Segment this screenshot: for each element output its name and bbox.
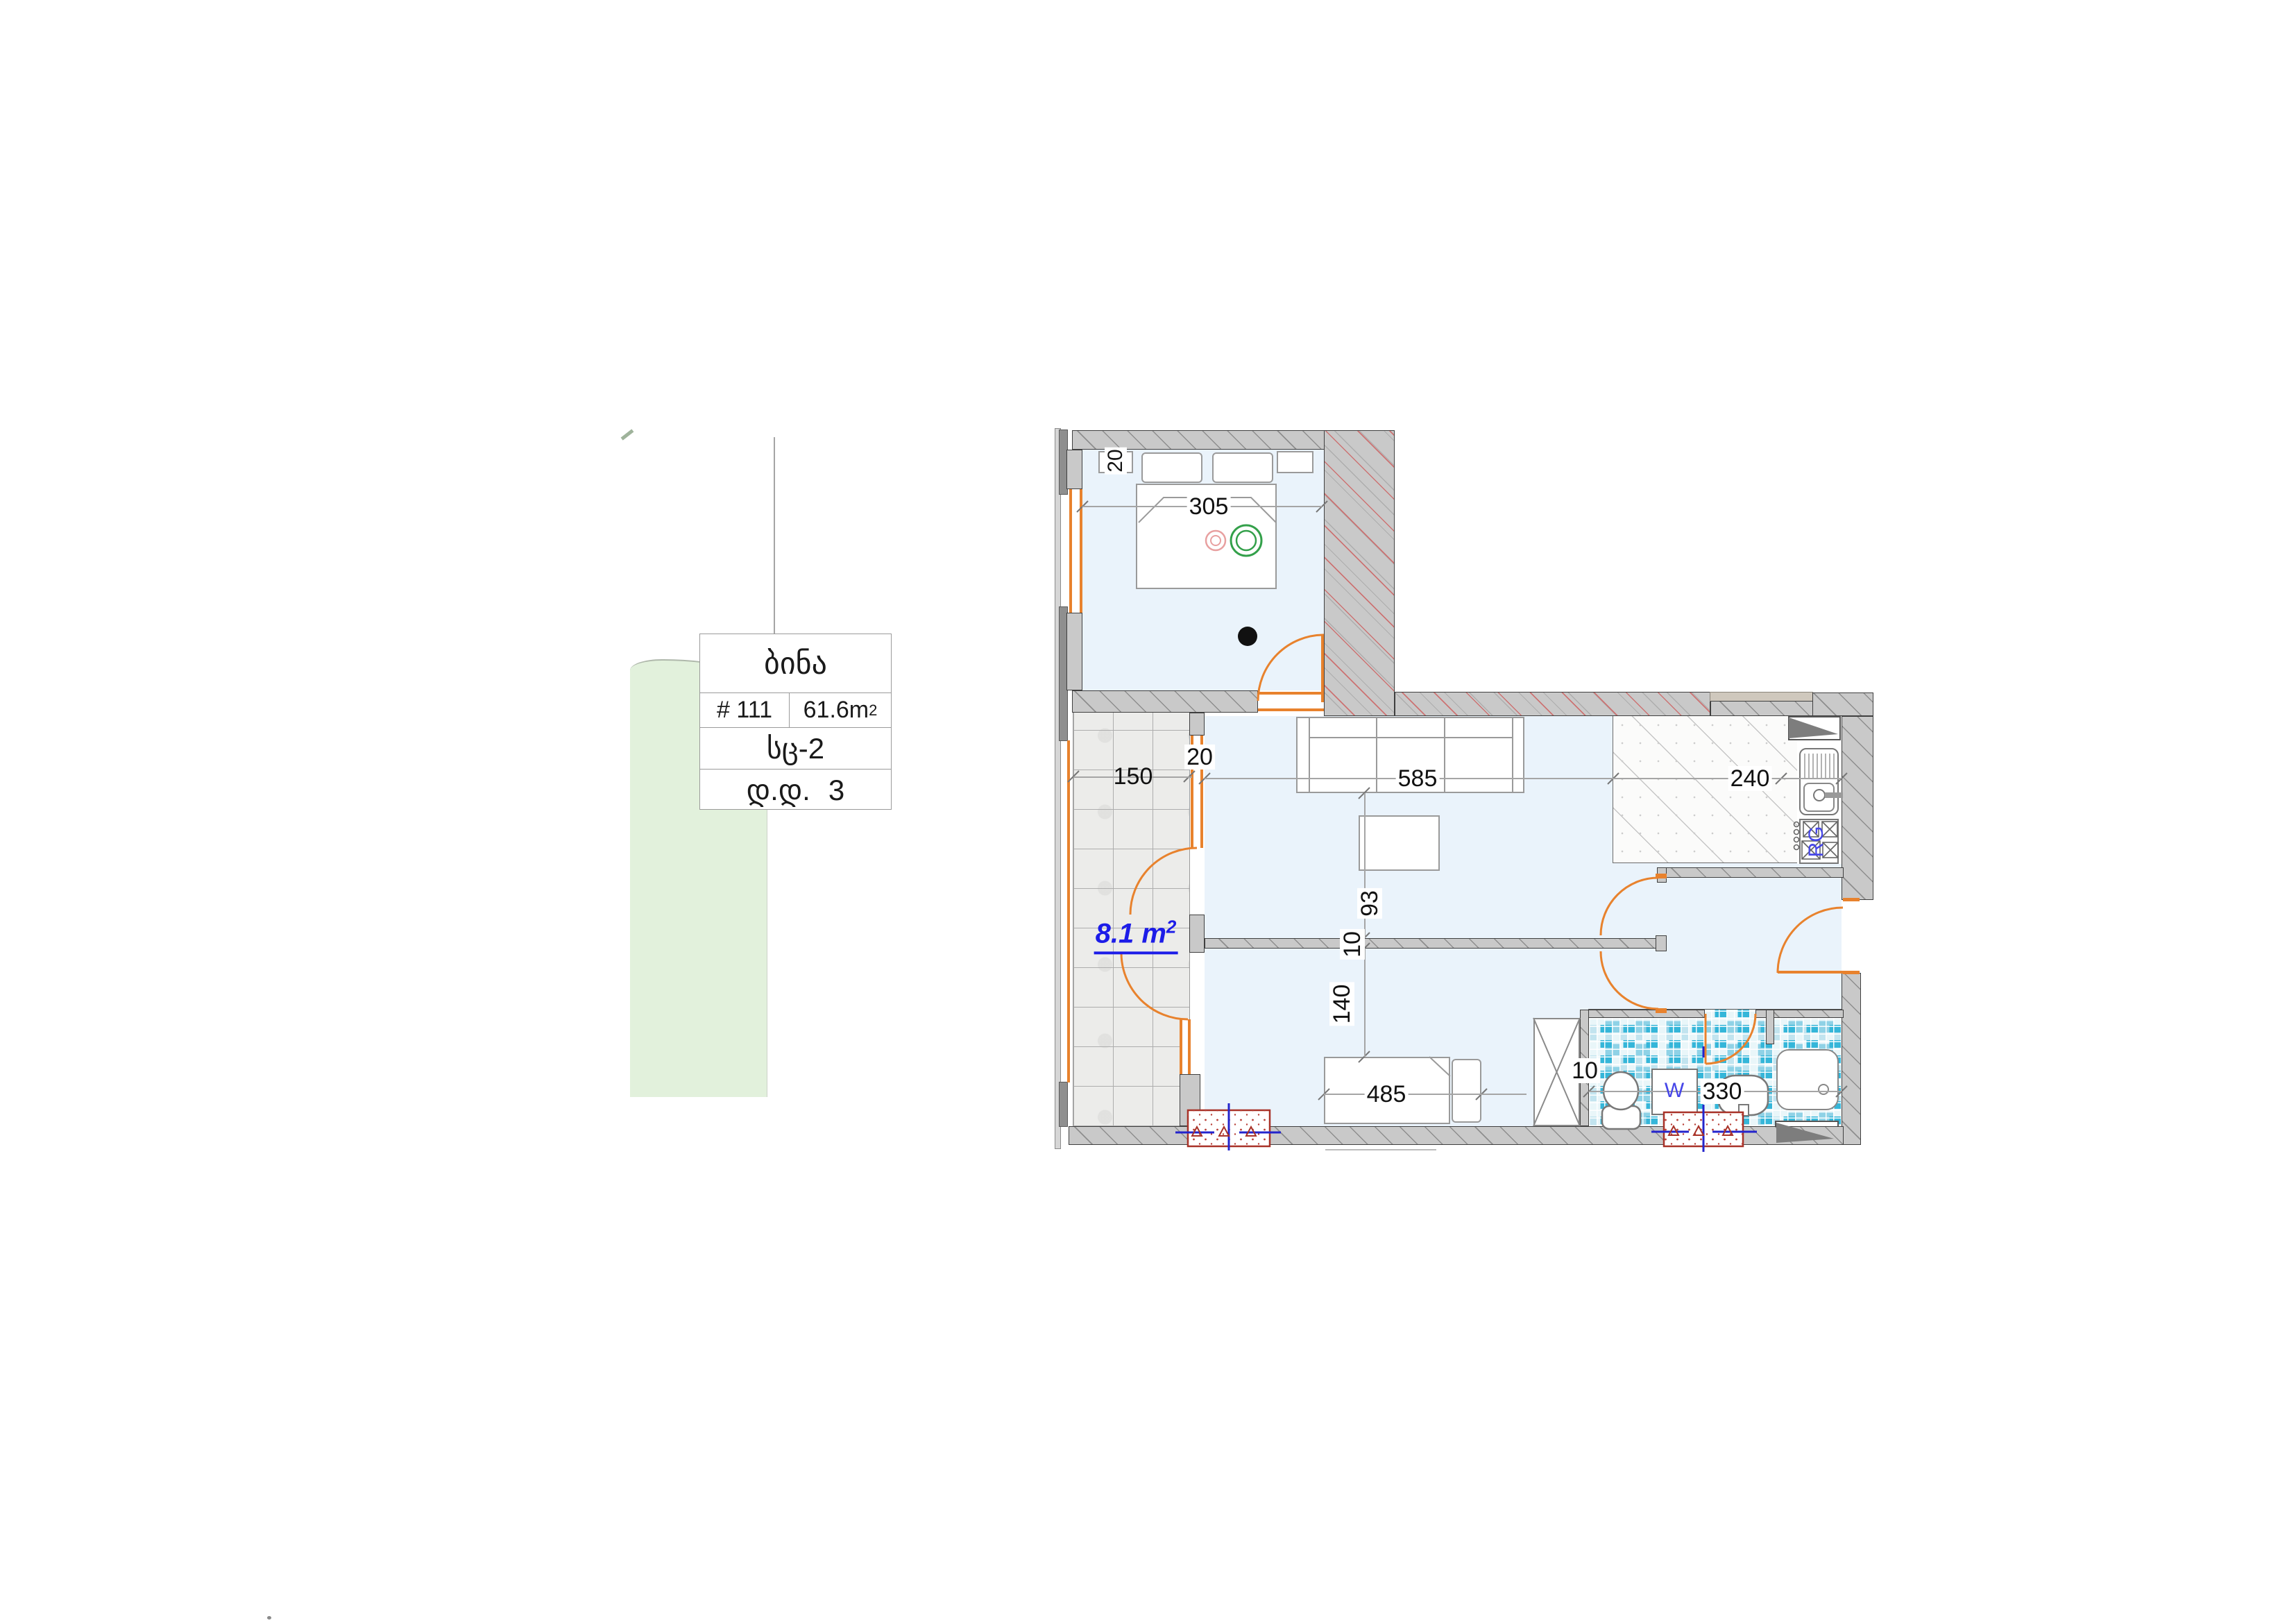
pier-strip-3 (1060, 1082, 1067, 1126)
wall-corner-topright (1812, 692, 1873, 716)
shower-tray (1776, 1049, 1839, 1110)
dim-partition: 10 (1340, 929, 1365, 960)
nightstand-right (1277, 451, 1313, 473)
washer-label: W (1665, 1079, 1684, 1103)
dim-sofa-clearance: 93 (1357, 888, 1382, 919)
sofa-divider-2 (1444, 718, 1445, 792)
wall-bath-divider (1766, 1010, 1774, 1044)
wall-facade-strip (1710, 692, 1812, 701)
wall-right-upper (1842, 716, 1873, 900)
dim-bed-width: 485 (1365, 1082, 1409, 1107)
dim-bathroom-width: 330 (1701, 1079, 1744, 1104)
apartment-area-cell: 61.6m2 (790, 693, 891, 727)
sofa-arm-left (1309, 718, 1310, 792)
floor-prefix: დ.დ. (747, 773, 810, 807)
dimline-bed (1324, 1094, 1527, 1095)
apartment-number: # 111 (717, 697, 772, 724)
sofa-arm-right (1512, 718, 1513, 792)
pier-bedroom-window-top (1066, 450, 1082, 489)
wall-kitchen-south (1657, 867, 1844, 878)
table-row-section: სც-2 (700, 727, 891, 769)
wall-living-top (1395, 692, 1710, 716)
table-leader-line (774, 437, 775, 634)
wall-right-lower (1842, 973, 1861, 1145)
pier-balcony-bottom (1180, 1074, 1200, 1126)
balcony-window-b-frame-2 (1188, 1019, 1191, 1074)
apartment-area: 61.6m (803, 697, 869, 724)
dim-kitchen-depth: 240 (1728, 766, 1772, 791)
table-row-title: ბინა (700, 634, 891, 692)
apartment-info-table[interactable]: ბინა # 111 61.6m2 სც-2 დ.დ. 3 (699, 634, 892, 810)
sofa-back-line (1309, 737, 1512, 738)
pier-balcony-top (1189, 713, 1205, 736)
apartment-area-sup: 2 (869, 702, 877, 720)
bedroom-window-frame-inner (1080, 489, 1082, 613)
coffee-table (1359, 815, 1440, 871)
entry-door-tick-top (1843, 898, 1860, 901)
dim-passage: 140 (1329, 983, 1354, 1026)
bedroom-door-leaf (1321, 635, 1324, 702)
balcony-area-value: 8.1 m (1096, 919, 1166, 949)
apartment-number-cell: # 111 (700, 693, 790, 727)
bed-pillow-right (1212, 452, 1273, 483)
dim-living-width: 585 (1396, 766, 1440, 791)
dim-balcony-wall: 20 (1184, 745, 1215, 770)
bedroom-door-frame-top (1258, 692, 1324, 695)
wall-bedroom-bottom (1072, 690, 1258, 713)
dimline-passage (1364, 949, 1366, 1057)
balcony-glazing (1067, 740, 1070, 1082)
entry-door-tick-bottom (1843, 971, 1860, 974)
single-bed-pillow (1452, 1059, 1481, 1123)
balcony-window-b-frame-1 (1180, 1019, 1182, 1074)
bedroom-door-frame-bottom (1258, 708, 1324, 711)
fridge (1788, 716, 1841, 740)
stove-label: RG (1805, 826, 1828, 858)
wall-bottom (1069, 1126, 1844, 1145)
balcony-area-link[interactable]: 8.1 m2 (1094, 916, 1178, 954)
sofa-divider-1 (1376, 718, 1377, 792)
wall-partition-endcap (1656, 935, 1667, 951)
dim-top-wall: 20 (1105, 447, 1127, 474)
dim-bedroom-width: 305 (1187, 494, 1231, 519)
bedroom-window-frame-outer (1069, 489, 1072, 613)
wall-bedroom-right (1324, 430, 1395, 716)
hall-door-stub-top (1656, 874, 1667, 878)
wall-left-boundary (1055, 429, 1060, 1148)
floorplan-canvas: 305 20 150 20 585 240 93 10 140 485 10 3… (0, 0, 2296, 1623)
dim-balcony-width: 150 (1112, 764, 1155, 789)
stray-dot (267, 1616, 271, 1620)
balcony-area-sup: 2 (1166, 916, 1176, 937)
pier-bedroom-window-bottom (1066, 613, 1082, 690)
table-row-floor: დ.დ. 3 (700, 769, 891, 810)
pier-balcony-mid (1189, 915, 1205, 953)
apartment-title: ბინა (764, 646, 827, 681)
kitchen-sink-basin (1803, 783, 1835, 812)
wall-partition (1205, 938, 1657, 949)
hall-door-stub-bottom (1656, 1008, 1667, 1013)
table-row-number-area: # 111 61.6m2 (700, 692, 891, 727)
section-code: სც-2 (767, 731, 824, 765)
wall-bath-top-left (1580, 1010, 1705, 1018)
dim-bath-wall: 10 (1570, 1058, 1600, 1083)
entry-door-leaf (1778, 971, 1843, 974)
below-wall-line (1325, 1149, 1436, 1150)
floor-number: 3 (828, 774, 844, 807)
corner-tick (621, 429, 634, 440)
bed-pillow-left (1141, 452, 1202, 483)
